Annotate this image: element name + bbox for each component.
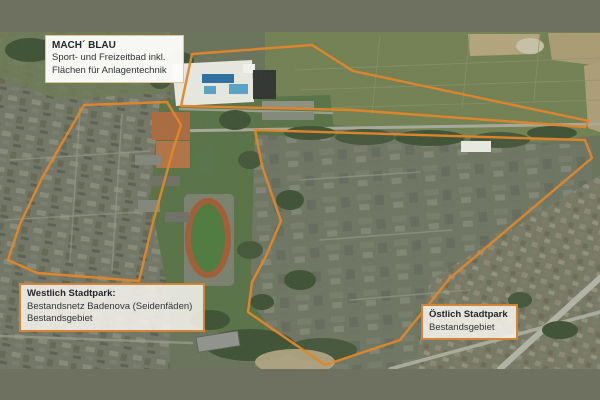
oestlich-line1: Bestandsgebiet [429, 322, 510, 335]
westlich-line1: Bestandsnetz Badenova (Seidenfäden) [27, 301, 197, 314]
mach-blau-line1: Sport- und Freizeitbad inkl. [52, 52, 177, 65]
westlich-line2: Bestandsgebiet [27, 313, 197, 326]
aerial-map-figure: MACH´ BLAU Sport- und Freizeitbad inkl. … [0, 0, 600, 400]
mach-blau-label: MACH´ BLAU Sport- und Freizeitbad inkl. … [45, 35, 184, 83]
mach-blau-title: MACH´ BLAU [52, 39, 177, 52]
mach-blau-line2: Flächen für Anlagentechnik [52, 65, 177, 78]
westlich-stadtpark-label: Westlich Stadtpark: Bestandsnetz Badenov… [19, 283, 205, 332]
oestlich-stadtpark-label: Östlich Stadtpark Bestandsgebiet [421, 304, 518, 340]
top-matte [0, 0, 600, 32]
bottom-matte [0, 369, 600, 400]
westlich-title: Westlich Stadtpark: [27, 288, 197, 301]
oestlich-title: Östlich Stadtpark [429, 309, 510, 322]
